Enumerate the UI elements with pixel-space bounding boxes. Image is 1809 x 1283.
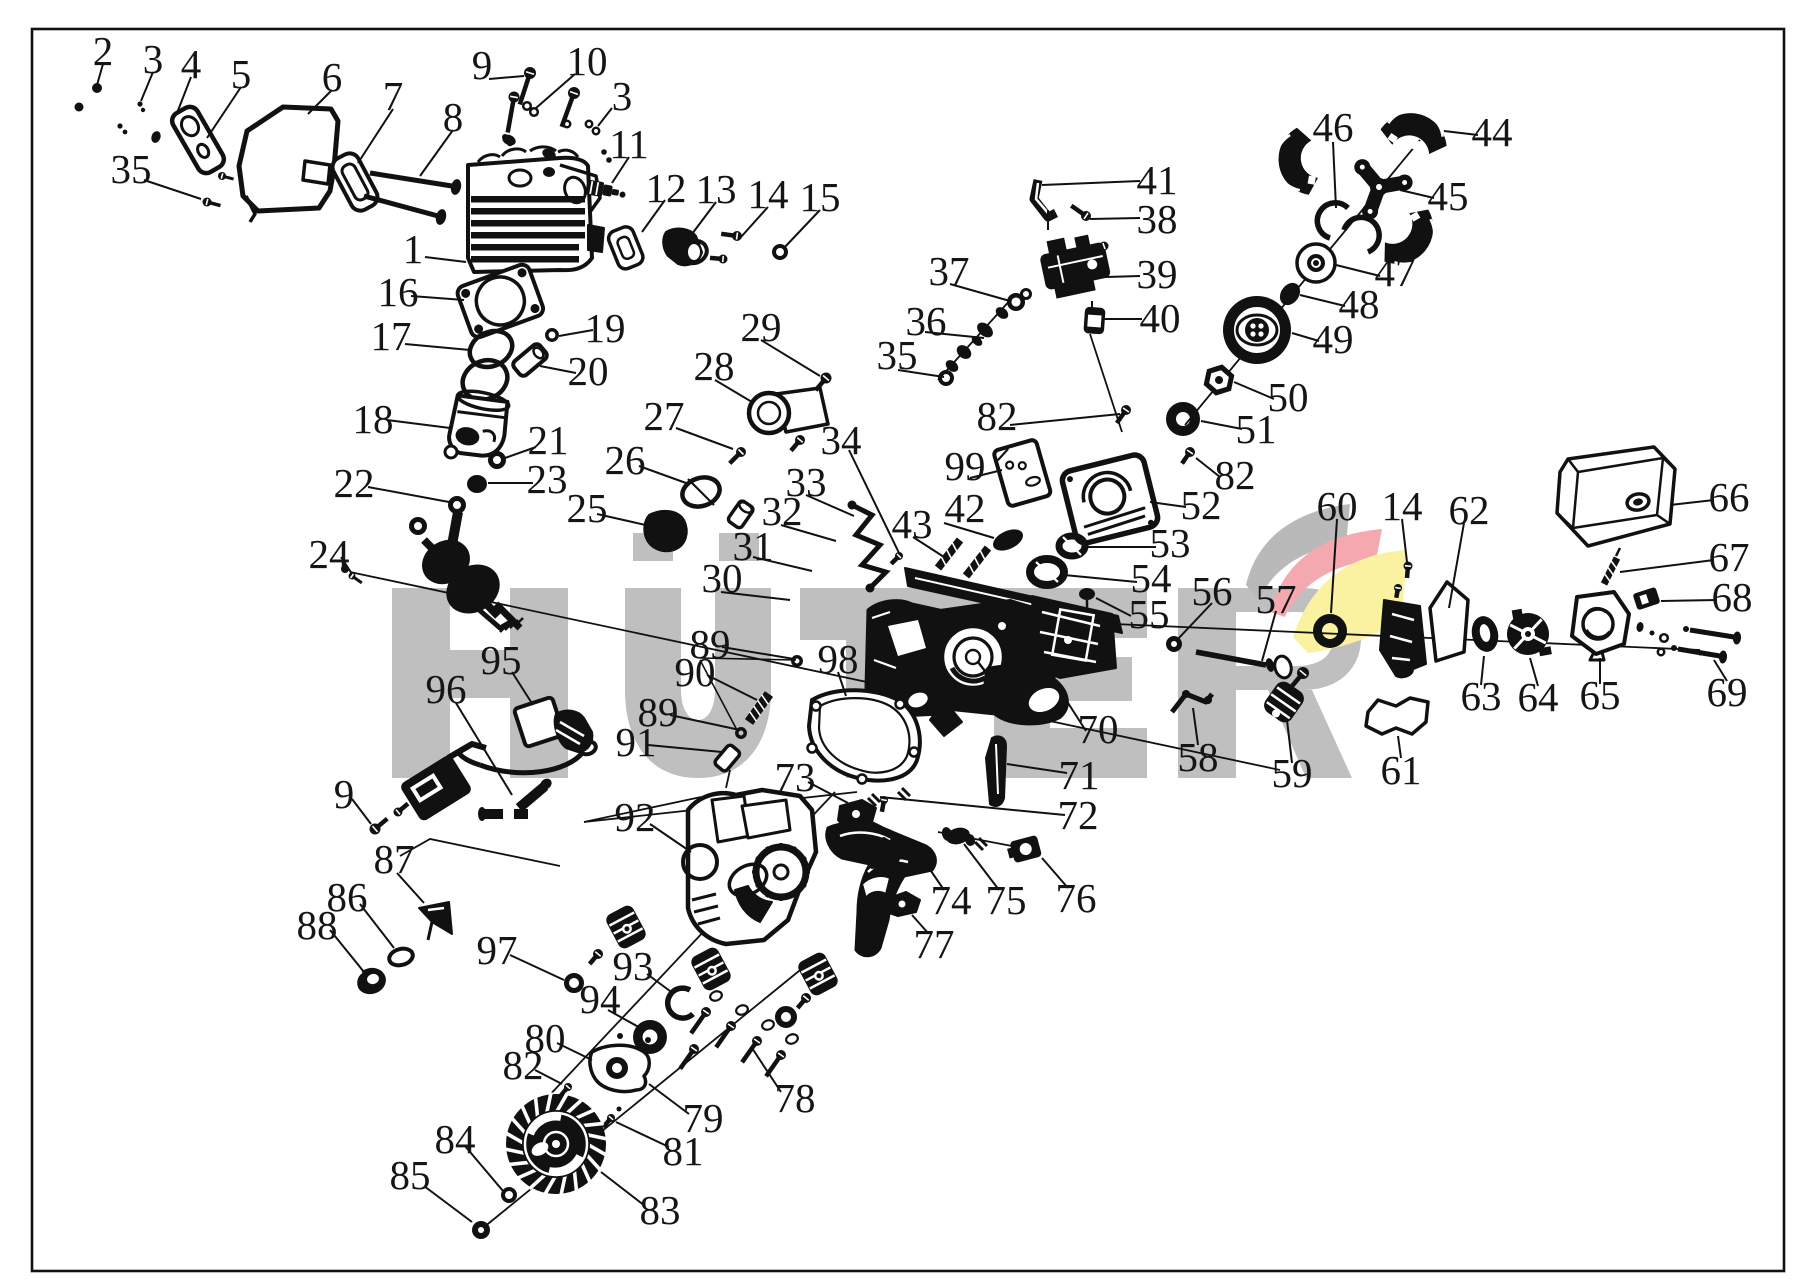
svg-text:24: 24 <box>309 531 350 577</box>
svg-text:95: 95 <box>481 637 522 683</box>
svg-text:73: 73 <box>775 754 816 800</box>
svg-text:29: 29 <box>741 304 782 350</box>
svg-text:78: 78 <box>775 1075 816 1121</box>
svg-text:2: 2 <box>93 28 114 74</box>
svg-text:20: 20 <box>568 348 609 394</box>
svg-text:39: 39 <box>1137 251 1178 297</box>
svg-text:97: 97 <box>477 927 518 973</box>
svg-text:42: 42 <box>945 485 986 531</box>
svg-text:8: 8 <box>443 94 464 140</box>
svg-text:34: 34 <box>821 417 862 463</box>
svg-text:72: 72 <box>1058 792 1099 838</box>
svg-text:83: 83 <box>640 1187 681 1233</box>
svg-text:22: 22 <box>334 460 375 506</box>
svg-text:91: 91 <box>616 719 657 765</box>
svg-text:68: 68 <box>1712 574 1753 620</box>
svg-text:84: 84 <box>435 1116 476 1162</box>
svg-text:76: 76 <box>1056 875 1097 921</box>
svg-text:26: 26 <box>605 437 646 483</box>
svg-text:1: 1 <box>403 226 424 272</box>
svg-text:55: 55 <box>1129 591 1170 637</box>
svg-text:70: 70 <box>1078 706 1119 752</box>
svg-text:35: 35 <box>111 146 152 192</box>
svg-text:44: 44 <box>1472 109 1513 155</box>
svg-text:69: 69 <box>1707 669 1748 715</box>
svg-text:28: 28 <box>694 343 735 389</box>
svg-text:88: 88 <box>297 902 338 948</box>
svg-text:57: 57 <box>1256 576 1297 622</box>
svg-text:5: 5 <box>231 51 252 97</box>
svg-text:30: 30 <box>702 555 743 601</box>
svg-text:13: 13 <box>696 166 737 212</box>
svg-text:6: 6 <box>322 54 343 100</box>
svg-text:92: 92 <box>615 794 656 840</box>
svg-text:10: 10 <box>567 38 608 84</box>
svg-text:25: 25 <box>567 485 608 531</box>
svg-text:87: 87 <box>374 836 415 882</box>
svg-text:74: 74 <box>931 877 972 923</box>
svg-text:75: 75 <box>986 877 1027 923</box>
svg-text:81: 81 <box>663 1128 704 1174</box>
svg-text:63: 63 <box>1461 673 1502 719</box>
svg-text:82: 82 <box>977 393 1018 439</box>
svg-text:12: 12 <box>646 165 687 211</box>
svg-text:3: 3 <box>143 36 164 82</box>
svg-text:9: 9 <box>334 771 355 817</box>
svg-text:19: 19 <box>585 305 626 351</box>
svg-text:14: 14 <box>748 171 789 217</box>
svg-text:46: 46 <box>1313 104 1354 150</box>
svg-text:7: 7 <box>383 73 404 119</box>
svg-text:15: 15 <box>800 174 841 220</box>
svg-text:62: 62 <box>1449 487 1490 533</box>
svg-text:66: 66 <box>1709 474 1750 520</box>
svg-text:18: 18 <box>353 396 394 442</box>
svg-text:58: 58 <box>1178 734 1219 780</box>
svg-text:14: 14 <box>1382 483 1423 529</box>
svg-text:99: 99 <box>945 443 986 489</box>
svg-text:35: 35 <box>877 332 918 378</box>
svg-text:17: 17 <box>371 313 412 359</box>
svg-text:60: 60 <box>1317 483 1358 529</box>
svg-text:96: 96 <box>426 666 467 712</box>
svg-text:93: 93 <box>613 943 654 989</box>
svg-text:43: 43 <box>892 501 933 547</box>
svg-text:98: 98 <box>818 636 859 682</box>
svg-text:45: 45 <box>1428 173 1469 219</box>
svg-text:82: 82 <box>503 1042 544 1088</box>
svg-text:90: 90 <box>675 649 716 695</box>
svg-text:38: 38 <box>1137 196 1178 242</box>
svg-text:64: 64 <box>1518 674 1559 720</box>
svg-text:4: 4 <box>181 41 202 87</box>
svg-text:49: 49 <box>1313 316 1354 362</box>
svg-text:77: 77 <box>914 921 955 967</box>
svg-text:51: 51 <box>1236 406 1277 452</box>
svg-text:3: 3 <box>612 73 633 119</box>
svg-text:37: 37 <box>929 248 970 294</box>
svg-text:61: 61 <box>1381 747 1422 793</box>
svg-text:59: 59 <box>1272 750 1313 796</box>
svg-text:16: 16 <box>378 269 419 315</box>
svg-text:47: 47 <box>1375 249 1416 295</box>
svg-text:85: 85 <box>390 1152 431 1198</box>
svg-text:65: 65 <box>1580 672 1621 718</box>
svg-text:23: 23 <box>527 456 568 502</box>
svg-text:40: 40 <box>1140 295 1181 341</box>
svg-text:56: 56 <box>1192 568 1233 614</box>
svg-text:9: 9 <box>472 42 493 88</box>
svg-text:27: 27 <box>644 393 685 439</box>
svg-text:11: 11 <box>609 121 648 167</box>
